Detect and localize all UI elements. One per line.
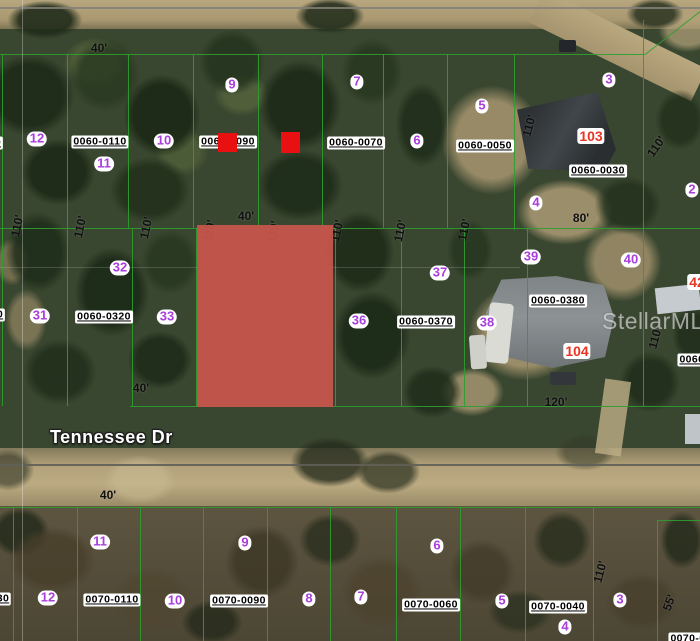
white-shed (469, 334, 487, 369)
boundary-line (77, 507, 78, 641)
lot-number-label: 11 (90, 535, 110, 550)
dimension-label: 40' (238, 210, 254, 224)
outbuilding-roof (685, 414, 700, 444)
lot-number-label: 7 (350, 75, 363, 90)
survey-line (0, 7, 700, 9)
parcel-id-label: 0060-0370 (397, 315, 455, 328)
vehicle (550, 372, 576, 385)
parcel-id-label: 0070-0060 (402, 598, 460, 611)
dimension-label: 120' (545, 396, 568, 410)
house-number-label: 42 (687, 274, 700, 290)
parcel-id-label: 0070-0 (668, 632, 700, 641)
red-square-marker (281, 132, 300, 153)
lot-number-label: 10 (165, 594, 185, 609)
lot-number-label: 33 (157, 310, 177, 325)
lot-number-label: 6 (430, 539, 443, 554)
parcel-id-label: 0060-0380 (529, 294, 587, 307)
aerial-parcel-map[interactable]: 40'40'40'40'80'120'110'110'110'110'110'1… (0, 0, 700, 641)
boundary-line (203, 507, 204, 641)
lot-number-label: 39 (521, 250, 541, 265)
boundary-line (396, 507, 397, 641)
boundary-line (525, 507, 526, 641)
lot-number-label: 7 (354, 590, 367, 605)
lot-number-label: 5 (495, 594, 508, 609)
parcel-id-label: 0060-0070 (327, 136, 385, 149)
dimension-label: 40' (133, 382, 149, 396)
house-number-label: 104 (563, 343, 590, 359)
boundary-line (67, 228, 68, 406)
dimension-label: 80' (573, 212, 589, 226)
boundary-line (267, 507, 268, 641)
boundary-line (514, 54, 515, 230)
boundary-line (335, 228, 336, 407)
lot-number-label: 4 (529, 196, 542, 211)
lot-number-label: 32 (110, 261, 130, 276)
lot-number-label: 2 (685, 183, 698, 198)
stellar-mls-watermark: StellarMLS (602, 308, 700, 335)
lot-number-label: 31 (30, 309, 50, 324)
boundary-line (67, 54, 68, 228)
parcel-id-label: 0070-0040 (529, 600, 587, 613)
boundary-line (330, 507, 331, 641)
boundary-line (0, 507, 700, 508)
lot-number-label: 3 (613, 593, 626, 608)
highlighted-parcel (197, 225, 333, 407)
lot-number-label: 4 (558, 620, 571, 635)
boundary-line (460, 507, 461, 641)
lot-number-label: 12 (38, 591, 58, 606)
boundary-line (193, 54, 194, 228)
lot-number-label: 37 (430, 266, 450, 281)
house-number-label: 103 (577, 128, 604, 144)
boundary-line (657, 520, 658, 641)
lot-number-label: 11 (94, 157, 114, 172)
lot-number-label: 8 (302, 592, 315, 607)
parcel-id-label: 0060-0050 (456, 139, 514, 152)
lot-number-label: 40 (621, 253, 641, 268)
boundary-line (464, 228, 465, 407)
parcel-id-label: 0060-0320 (75, 310, 133, 323)
lot-number-label: 5 (475, 99, 488, 114)
parcel-id-label: 0060-0030 (569, 164, 627, 177)
boundary-line (258, 54, 259, 228)
dimension-label: 40' (100, 489, 116, 503)
lot-number-label: 36 (349, 314, 369, 329)
boundary-line (643, 20, 644, 406)
dimension-label: 40' (91, 42, 107, 56)
vehicle (559, 40, 576, 52)
parcel-id-label: 0 (0, 136, 3, 149)
lot-number-label: 12 (27, 132, 47, 147)
boundary-line (657, 520, 700, 521)
lot-number-label: 10 (154, 134, 174, 149)
parcel-id-label: 0060-0 (677, 353, 700, 366)
boundary-line (447, 54, 448, 228)
parcel-id-label: 0070-0110 (83, 593, 140, 606)
boundary-line (322, 54, 323, 228)
street-name-label: Tennessee Dr (50, 427, 173, 448)
boundary-line (0, 228, 700, 229)
survey-line (22, 0, 23, 641)
boundary-line (13, 507, 14, 641)
lot-number-label: 38 (477, 316, 497, 331)
survey-line (0, 464, 700, 466)
red-square-marker (218, 133, 237, 152)
parcel-id-label: 0060-0110 (71, 135, 128, 148)
boundary-line (140, 507, 141, 641)
lot-number-label: 9 (225, 78, 238, 93)
lot-number-label: 9 (238, 536, 251, 551)
parcel-id-label: 0 (0, 308, 5, 321)
lot-number-label: 6 (410, 134, 423, 149)
parcel-id-label: 0070-0090 (210, 594, 268, 607)
parcel-id-label: 30 (0, 592, 11, 605)
lot-number-label: 3 (602, 73, 615, 88)
